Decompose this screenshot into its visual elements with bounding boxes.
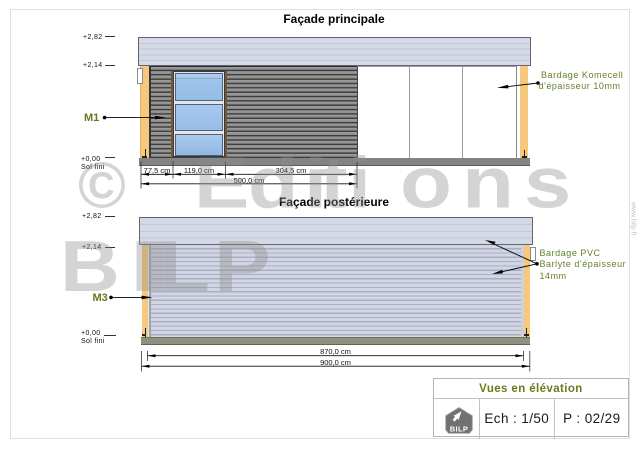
svg-text:BILP: BILP	[450, 424, 469, 433]
